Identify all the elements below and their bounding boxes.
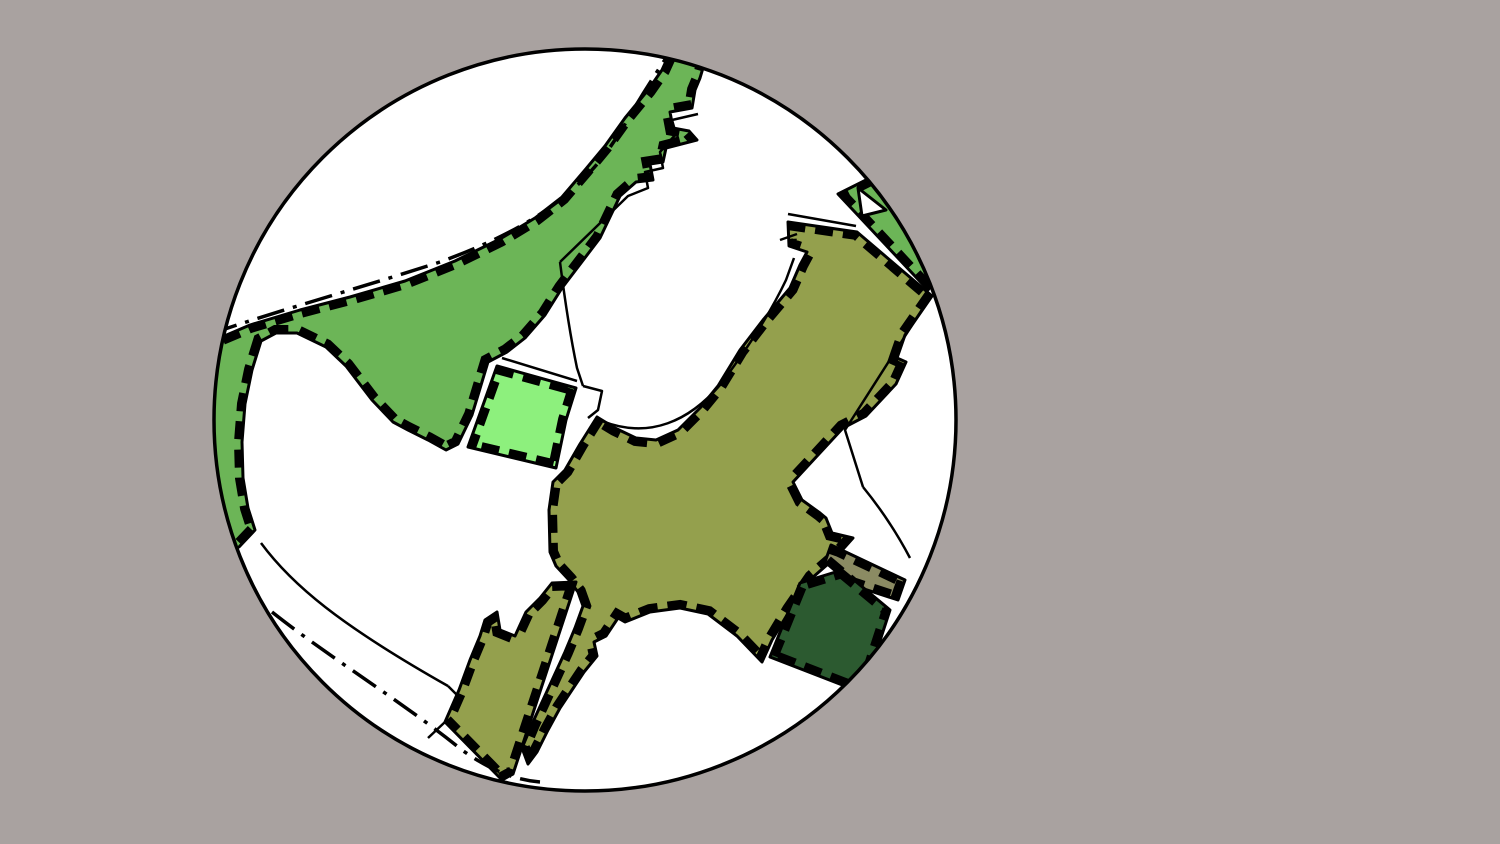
map-magnifier-view (0, 0, 1500, 844)
map-circle-svg (0, 0, 1500, 844)
